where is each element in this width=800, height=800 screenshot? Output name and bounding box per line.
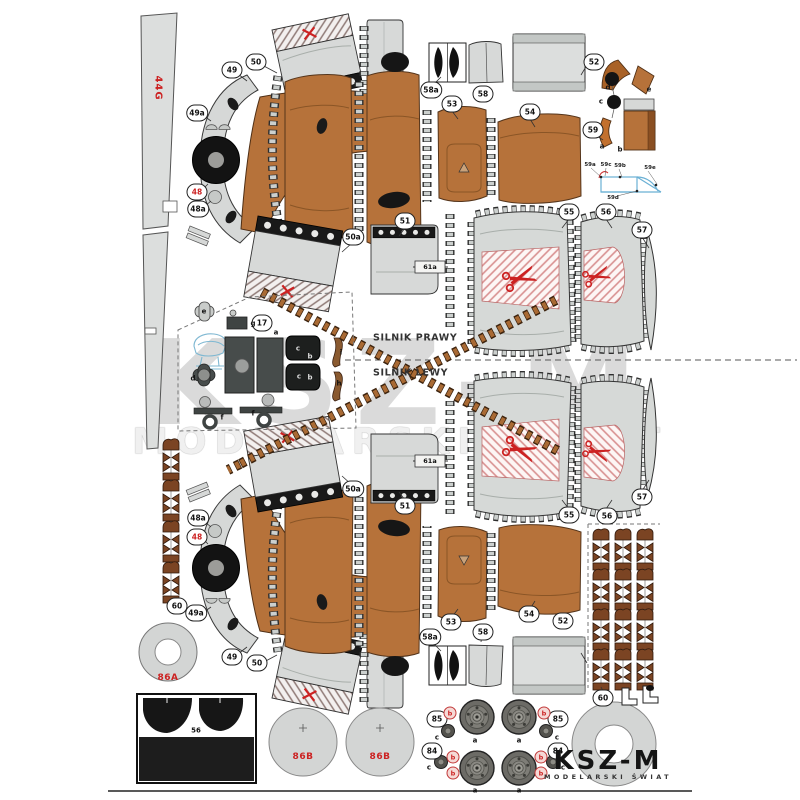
letter-wheel-a1: a	[473, 738, 478, 745]
cowl-panel-53	[438, 106, 487, 201]
tag-61a-top: 61a	[423, 263, 436, 271]
model-sheet-page: KSZ-M MODELARSKI ŚWIAT .tabA{fill:none;s…	[0, 0, 800, 800]
letter-f: f	[220, 415, 223, 422]
sub-part-b5: b	[535, 751, 548, 764]
part-badge-51-2: 51	[395, 498, 416, 515]
track-link-column-left	[163, 439, 179, 603]
letter-d: d	[605, 85, 610, 92]
diagram-label-59e: 59e	[644, 165, 655, 171]
part-badge-49a: 49a	[186, 105, 208, 122]
sub-part-b3: b	[447, 751, 460, 764]
letter-i: i	[340, 350, 342, 357]
part-badge-55: 55	[559, 204, 580, 221]
part-label-44g: 44G	[153, 75, 164, 100]
section-label-right-engine: SILNIK PRAWY	[373, 333, 457, 344]
letter-wheel-a2: a	[517, 738, 522, 745]
letter-wheel-c1: c	[435, 735, 439, 742]
part-badge-52-2: 52	[553, 613, 574, 630]
letter-b: b	[617, 147, 622, 154]
letter-e: e	[647, 87, 652, 94]
letter-b3: b	[307, 375, 312, 382]
letter-wheel-a3: a	[473, 788, 478, 795]
letter-g: g	[250, 321, 255, 328]
part-badge-49-2: 49	[222, 649, 243, 666]
track-link-grid-right	[588, 524, 660, 691]
part-badge-56-2: 56	[597, 508, 618, 525]
fillet-crescent-57	[644, 233, 656, 350]
part-badge-48a-2: 48a	[187, 510, 209, 527]
part-badge-60-left: 60	[167, 598, 188, 615]
part-badge-57-2: 57	[632, 489, 653, 506]
canopy-parts-box-56	[137, 694, 256, 783]
part-badge-48a: 48a	[187, 201, 209, 218]
tag-61a-bottom: 61a	[423, 457, 436, 465]
diagram-label-59a: 59a	[584, 162, 595, 168]
sub-part-b1: b	[444, 707, 457, 720]
letter-c3: c	[297, 374, 301, 381]
diagram-label-59c: 59c	[601, 162, 612, 168]
section-label-left-engine: SILNIK LEWY	[373, 368, 448, 379]
letter-c2: c	[296, 346, 300, 353]
part-badge-54-2: 54	[519, 606, 540, 623]
part-badge-50a-2: 50a	[342, 481, 364, 498]
letter-e2: e	[202, 309, 207, 316]
assembly-diagram-59	[591, 168, 661, 196]
part-badge-58: 58	[473, 86, 494, 103]
sub-part-b4: b	[447, 767, 460, 780]
parts-artwork: .tabA{fill:none;stroke:#2d2d2d;stroke-wi…	[0, 0, 800, 800]
part-badge-49a-2: 49a	[185, 605, 207, 622]
part-label-86a: 86A	[158, 673, 179, 683]
letter-b2: b	[307, 354, 312, 361]
publisher-logo-text: KSZ-M	[554, 746, 663, 776]
part-badge-51: 51	[395, 213, 416, 230]
letter-wheel-c2: c	[555, 735, 559, 742]
letter-f2: f	[251, 411, 254, 418]
letter-a2: a	[274, 330, 279, 337]
part-badge-49: 49	[222, 62, 243, 79]
letter-h: h	[337, 381, 342, 388]
part-badge-50-2: 50	[247, 655, 268, 672]
letter-d2: d	[190, 376, 195, 383]
part-badge-50a: 50a	[342, 229, 364, 246]
sub-part-b2: b	[538, 707, 551, 720]
part-badge-53: 53	[442, 96, 463, 113]
part-badge-56: 56	[596, 204, 617, 221]
part-badge-53-2: 53	[441, 614, 462, 631]
letter-wheel-c3: c	[427, 765, 431, 772]
part-badge-58a: 58a	[420, 82, 442, 99]
part-badge-58a-2: 58a	[419, 629, 441, 646]
cowl-panel-left	[285, 75, 353, 242]
seat-diagram	[194, 334, 226, 369]
part-badge-58-2: 58	[473, 624, 494, 641]
part-label-86b-1: 86B	[293, 752, 314, 762]
part-badge-54: 54	[520, 104, 541, 121]
exhaust-parts-group-59	[597, 60, 655, 150]
part-badge-48: 48	[187, 184, 208, 201]
part-badge-57: 57	[632, 222, 653, 239]
part-label-86b-2: 86B	[370, 752, 391, 762]
part-badge-48-2: 48	[187, 529, 208, 546]
part-badge-50: 50	[246, 54, 267, 71]
letter-wheel-a4: a	[517, 788, 522, 795]
nacelle-side-panel-lower	[244, 216, 343, 312]
disc-86b-pair	[269, 708, 414, 776]
boot-toe-mark	[646, 685, 654, 691]
part-badge-60-right: 60	[593, 690, 614, 707]
diagram-label-59d: 59d	[607, 195, 619, 201]
letter-a: a	[600, 144, 605, 151]
part-badge-55-2: 55	[559, 507, 580, 524]
part-badge-85-right: 85	[548, 711, 569, 728]
part-badge-52: 52	[584, 54, 605, 71]
cowl-panel-54	[498, 114, 581, 203]
part-badge-59: 59	[583, 122, 604, 139]
diagram-label-59b: 59b	[614, 163, 626, 169]
label-56-canopy-box: 56	[191, 728, 201, 735]
part-badge-84-left: 84	[422, 743, 443, 760]
publisher-logo-tagline: MODELARSKI ŚWIAT	[544, 773, 672, 781]
letter-c: c	[599, 99, 603, 106]
